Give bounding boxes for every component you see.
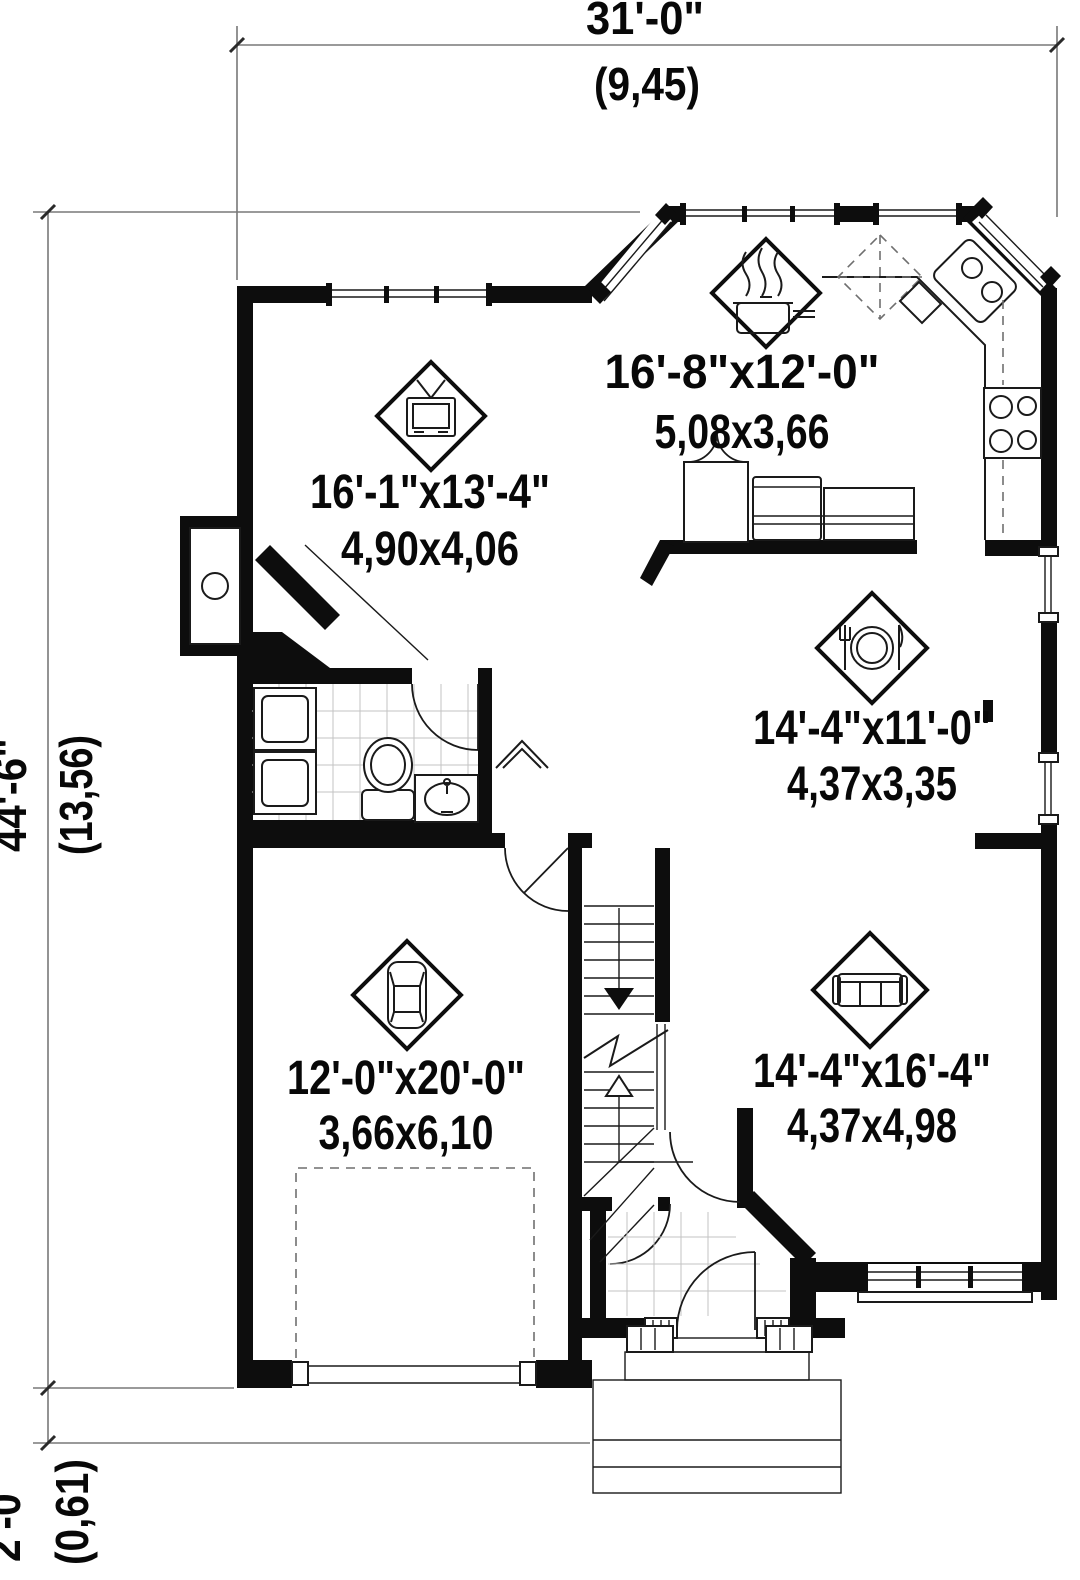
floor-plan-page: 16'-1"x13'-4" 4,90x4,06 16'-8"x12'-0" 5,… <box>0 0 1080 1580</box>
floor-plan-drawing: 16'-1"x13'-4" 4,90x4,06 16'-8"x12'-0" 5,… <box>0 0 1080 1580</box>
stairs-break-line <box>584 1030 668 1066</box>
dryer-icon <box>254 752 316 814</box>
kitchen-size-imperial: 16'-8"x12'-0" <box>605 346 880 399</box>
dining-room-size-metric: 4,37x3,35 <box>787 758 957 811</box>
family-room-size-imperial: 14'-4"x16'-4" <box>753 1045 991 1098</box>
family-door-arc <box>670 1132 740 1202</box>
archway-marker-hall <box>496 741 548 768</box>
hall-doors <box>496 600 898 1264</box>
dishwasher-icon <box>753 477 821 540</box>
kitchen-diamond <box>712 239 820 347</box>
garage-area <box>296 1168 534 1358</box>
entry-tile-floor <box>608 1212 786 1316</box>
vanity-sink-icon <box>415 775 478 822</box>
washer-icon <box>254 688 316 750</box>
stove-icon <box>984 388 1041 458</box>
front-steps <box>593 1326 841 1493</box>
dim-left-metric: (13,56) <box>50 735 102 855</box>
dining-room-size-imperial: 14'-4"x11'-0" <box>753 702 991 755</box>
stair-hall-door-arc <box>610 1204 670 1264</box>
stairs-up-arrow <box>606 1076 632 1096</box>
garage-size-metric: 3,66x6,10 <box>319 1107 494 1160</box>
family-room-diamond <box>813 933 927 1047</box>
toilet-icon <box>362 738 414 820</box>
corner-cabinet-dashed <box>838 235 941 323</box>
dim-left-imperial: 44'-6" <box>0 738 36 852</box>
garage-entry-door-arc <box>505 848 568 911</box>
dining-room-diamond <box>817 593 927 703</box>
stairs-down-arrow <box>604 988 634 1010</box>
dim-porch-metric: (0,61) <box>46 1459 98 1565</box>
living-room-size-metric: 4,90x4,06 <box>341 523 519 576</box>
dim-top-metric: (9,45) <box>594 58 700 110</box>
dim-top-imperial: 31'-0" <box>586 0 704 44</box>
dim-porch-imperial: 2'-0" <box>0 1474 30 1562</box>
bathroom <box>252 684 478 822</box>
garage-diamond <box>353 941 461 1049</box>
kitchen-size-metric: 5,08x3,66 <box>655 406 830 459</box>
living-room-size-imperial: 16'-1"x13'-4" <box>310 466 550 519</box>
garage-size-imperial: 12'-0"x20'-0" <box>287 1052 525 1105</box>
garage-door-dashed-outline <box>296 1168 534 1358</box>
family-room-size-metric: 4,37x4,98 <box>787 1100 957 1153</box>
living-room-diamond <box>377 362 485 470</box>
